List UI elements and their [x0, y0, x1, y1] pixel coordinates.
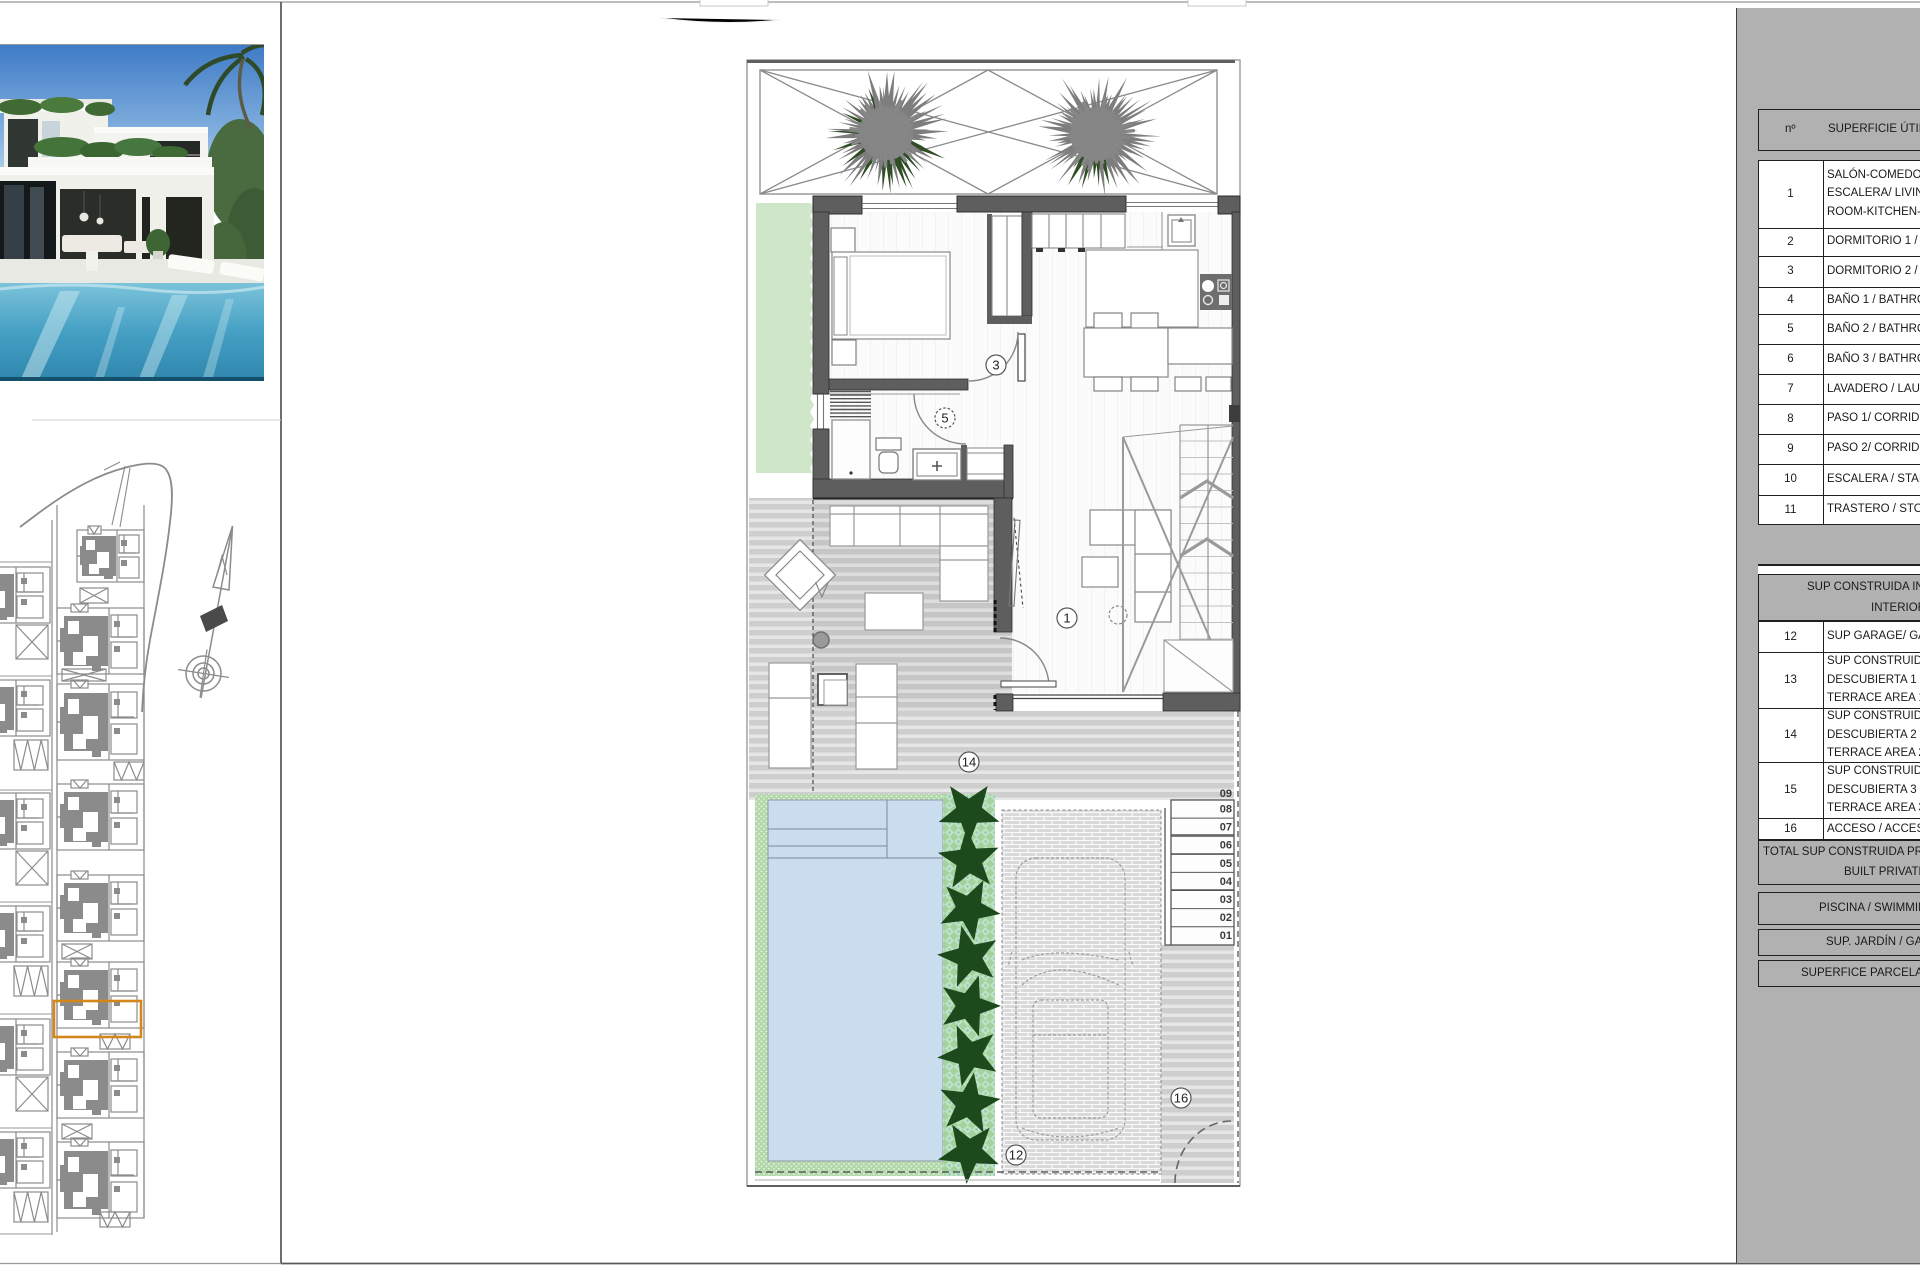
svg-text:09: 09 — [1220, 788, 1232, 800]
svg-text:07: 07 — [1220, 822, 1232, 834]
svg-text:5: 5 — [941, 411, 948, 426]
svg-text:05: 05 — [1220, 858, 1232, 870]
svg-text:1: 1 — [1063, 611, 1070, 626]
svg-text:03: 03 — [1220, 894, 1232, 906]
svg-text:16: 16 — [1174, 1091, 1188, 1106]
svg-text:3: 3 — [992, 358, 999, 373]
svg-text:01: 01 — [1220, 930, 1232, 942]
svg-text:02: 02 — [1220, 912, 1232, 924]
svg-text:12: 12 — [1009, 1148, 1023, 1163]
svg-text:14: 14 — [962, 755, 976, 770]
svg-text:06: 06 — [1220, 840, 1232, 852]
svg-text:04: 04 — [1220, 876, 1233, 888]
svg-text:08: 08 — [1220, 804, 1232, 816]
